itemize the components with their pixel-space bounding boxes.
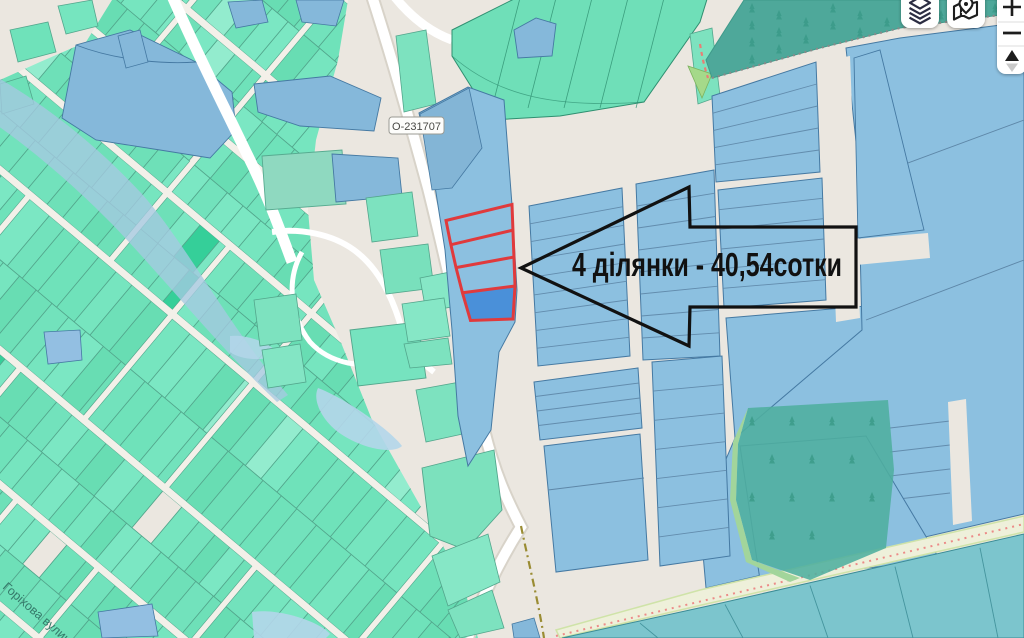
svg-text:4 ділянки - 40,54сотки: 4 ділянки - 40,54сотки — [572, 246, 842, 283]
svg-text:O-231707: O-231707 — [392, 121, 441, 133]
